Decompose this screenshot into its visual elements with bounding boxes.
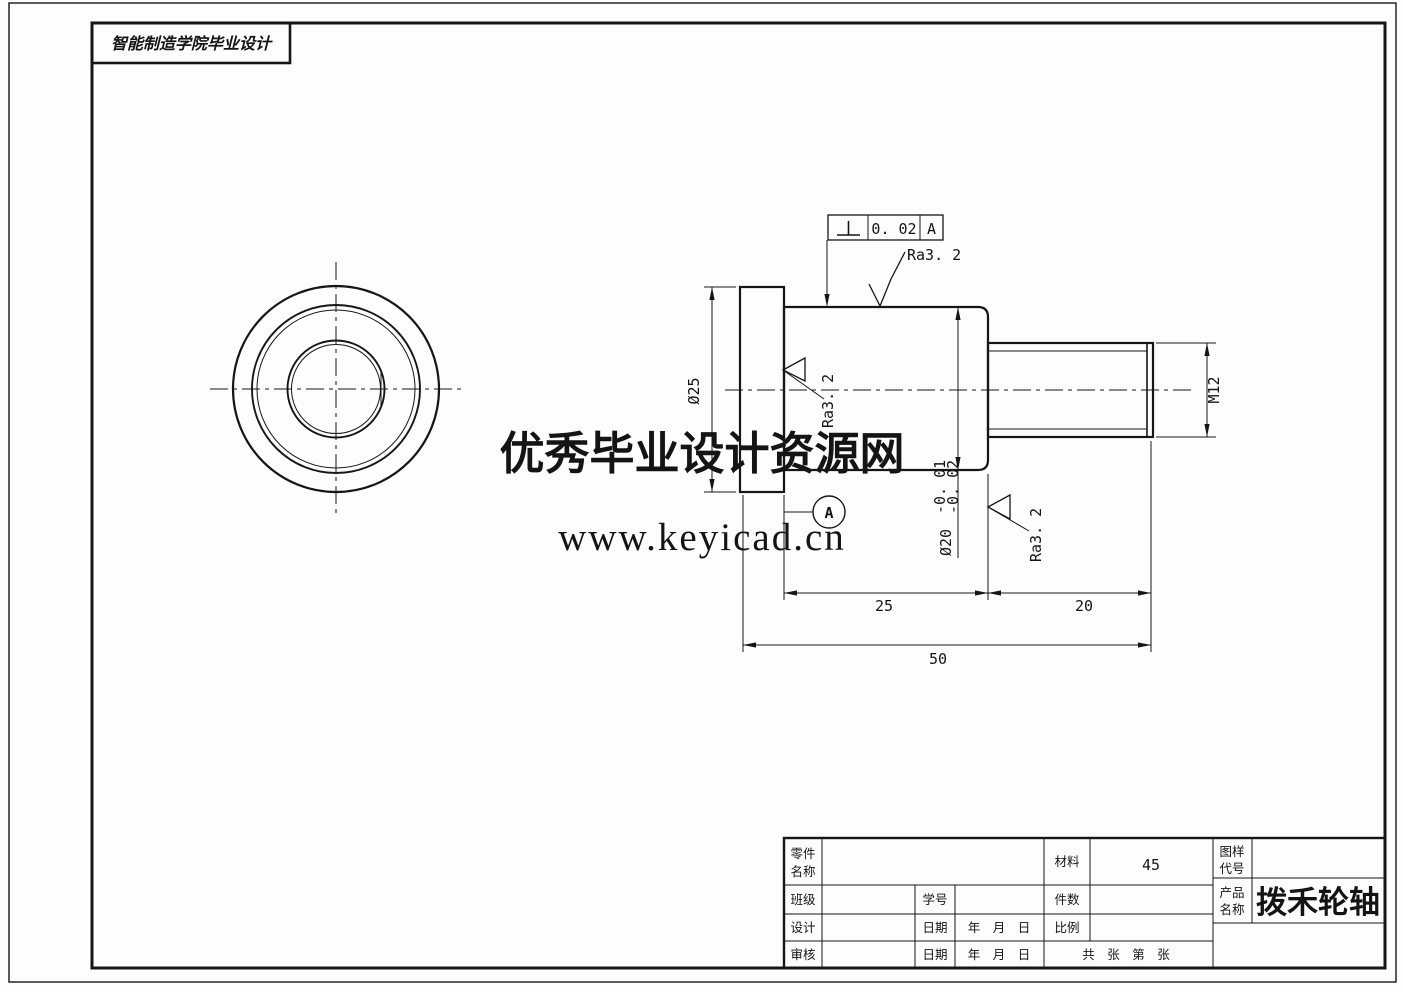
material-value: 45 <box>1142 856 1160 874</box>
scale-label: 比例 <box>1054 921 1079 935</box>
roughness-symbol-top: Ra3. 2 <box>869 246 961 306</box>
school-title: 智能制造学院毕业设计 <box>111 35 273 53</box>
part-name-label-line2: 名称 <box>790 864 815 879</box>
tolerance-leader-arrow <box>824 294 829 307</box>
watermark-line1: 优秀毕业设计资源网 <box>499 428 904 479</box>
watermark-line2: www.keyicad.cn <box>558 516 846 559</box>
dim-shaft-diameter: Ø20 -0. 01 -0. 02 <box>931 307 962 558</box>
watermark: 优秀毕业设计资源网 www.keyicad.cn <box>499 428 904 559</box>
tolerance-value: 0. 02 <box>871 220 916 238</box>
title-block: 零件 名称 班级 设计 审核 学号 日期 日期 年 月 日 年 月 日 材料 件… <box>784 838 1385 968</box>
review-label: 审核 <box>790 947 816 962</box>
sheets-label: 共 张 第 张 <box>1082 947 1170 962</box>
datum-letter: A <box>824 504 833 522</box>
drawing-code-label-line1: 图样 <box>1219 844 1244 859</box>
side-view <box>210 262 462 516</box>
thread-spec-label: M12 <box>1205 376 1223 403</box>
cad-drawing-page: 优秀毕业设计资源网 www.keyicad.cn 智能制造学院毕业设计 <box>0 0 1403 992</box>
part-name-label-line1: 零件 <box>790 847 815 861</box>
shaft-diameter-label: Ø20 <box>937 529 955 556</box>
product-name-label-line2: 名称 <box>1219 902 1244 917</box>
date-value-2: 年 月 日 <box>968 948 1031 962</box>
quantity-label: 件数 <box>1054 892 1080 907</box>
roughness-top-label: Ra3. 2 <box>907 246 961 264</box>
flange-diameter-label: Ø25 <box>685 377 703 404</box>
roughness-symbol-right: Ra3. 2 <box>988 495 1045 562</box>
drawing-canvas: 优秀毕业设计资源网 www.keyicad.cn 智能制造学院毕业设计 <box>0 0 1403 992</box>
roughness-symbol-left: Ra3. 2 <box>783 358 837 428</box>
student-id-label: 学号 <box>922 892 947 907</box>
shaft-tolerance-lower: -0. 02 <box>944 460 962 514</box>
class-label: 班级 <box>790 893 816 907</box>
total-length-label: 50 <box>929 650 947 668</box>
date-value-1: 年 月 日 <box>968 921 1031 935</box>
date-label-2: 日期 <box>922 948 947 962</box>
perpendicularity-icon <box>837 221 860 235</box>
product-name-label-line1: 产品 <box>1219 886 1244 900</box>
roughness-right-label: Ra3. 2 <box>1027 508 1045 562</box>
drawing-code-label-line2: 代号 <box>1219 862 1244 876</box>
material-label: 材料 <box>1054 855 1080 869</box>
date-label-1: 日期 <box>922 921 947 935</box>
shaft-length-label: 25 <box>875 597 893 615</box>
sheet-borders <box>9 3 1396 982</box>
design-label: 设计 <box>790 920 815 935</box>
tolerance-datum-ref: A <box>927 220 936 238</box>
roughness-left-label: Ra3. 2 <box>819 374 837 428</box>
roughness-symbols: Ra3. 2 Ra3. 2 Ra3. 2 <box>783 246 1045 562</box>
product-name-value: 拨禾轮轴 <box>1256 885 1380 920</box>
thread-length-label: 20 <box>1075 597 1093 615</box>
